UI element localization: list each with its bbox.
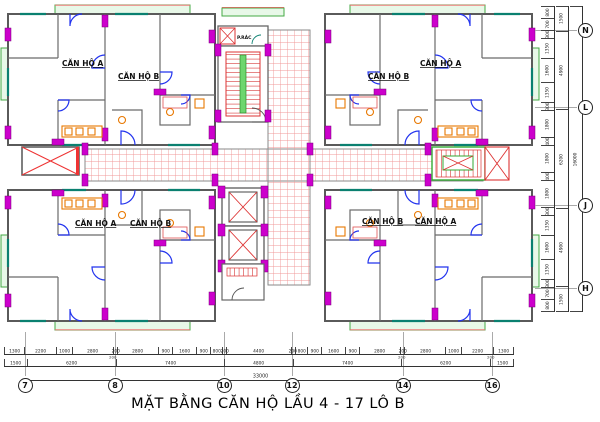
dim-value: 1350 [541, 38, 554, 58]
overall-height-dim: 16000 [573, 152, 578, 166]
dim-value: 4800 [224, 359, 294, 366]
dim-value: 1500 [556, 286, 568, 312]
grid-bubble-l: L [578, 100, 593, 115]
dim-value: 200 [113, 347, 117, 354]
dim-value: 400 [541, 172, 554, 180]
unit-label: CĂN HỘ A [415, 217, 456, 226]
dim-value: 1500 [490, 359, 514, 366]
dim-value: 6200 [401, 359, 491, 366]
dim-value: 300 [541, 30, 554, 38]
stair-shaft-x [485, 147, 509, 180]
dim-value: 400 [541, 137, 554, 145]
bottom-dim-row-total: 33000 [4, 367, 514, 380]
unit-label: CĂN HỘ A [75, 219, 116, 228]
dim-value: 200 [222, 347, 226, 354]
apartment-quadrant-bottom-right [325, 190, 539, 330]
grid-bubble-10: 10 [217, 378, 232, 393]
dim-value: 1350 [541, 82, 554, 102]
dim-value: 4900 [556, 31, 568, 109]
right-dim-col-bays: 15004900620049001500 [556, 6, 569, 312]
dim-value: 700 [541, 287, 554, 298]
grid-bubble-7: 7 [18, 378, 33, 393]
grid-bubble-14: 14 [396, 378, 411, 393]
center-balcony [222, 8, 284, 16]
wall-dim-label: 200 [487, 356, 494, 360]
dim-value: 900 [158, 347, 172, 354]
trash-room: P.RÁC [218, 26, 268, 46]
dim-value: 800 [541, 6, 554, 18]
dim-value: 1300 [493, 347, 514, 354]
emergency-stair [432, 147, 485, 180]
bottom-dim-row-bays: 1500620074004800740062001500 [4, 355, 514, 367]
unit-label: CĂN HỘ B [118, 72, 159, 81]
dim-value: 800 [541, 299, 554, 312]
unit-label: CĂN HỘ B [368, 72, 409, 81]
floor-plan: P.RÁC [0, 0, 540, 335]
dim-value: 200 [291, 347, 295, 354]
grid-bubble-12: 12 [285, 378, 300, 393]
dim-value: 6200 [27, 359, 117, 366]
dim-value: 2800 [117, 347, 158, 354]
trash-room-label: P.RÁC [237, 34, 252, 41]
dim-value: 1300 [4, 347, 24, 354]
dim-value: 1600 [541, 235, 554, 259]
dim-value: 900 [307, 347, 321, 354]
dim-value: 1600 [321, 347, 345, 354]
dim-value: 700 [541, 18, 554, 29]
dim-value: 1800 [541, 180, 554, 207]
dim-value: 7400 [116, 359, 223, 366]
dim-value: 1000 [445, 347, 460, 354]
right-dim-col-total: 16000 [570, 6, 583, 312]
dim-value: 200 [400, 347, 404, 354]
grid-bubble-n: N [578, 23, 593, 38]
apartment-quadrant-top-right [325, 5, 539, 145]
drawing-title: MẶT BẰNG CĂN HỘ LẦU 4 - 17 LÔ B [100, 396, 436, 412]
dim-value: 300 [541, 279, 554, 287]
void-x-room [22, 147, 79, 175]
dim-value: 2800 [404, 347, 445, 354]
unit-label: CĂN HỘ B [362, 217, 403, 226]
grid-bubble-8: 8 [108, 378, 123, 393]
unit-label: CĂN HỘ A [62, 59, 103, 68]
overall-width-dim: 33000 [253, 374, 268, 380]
dim-value: 1000 [56, 347, 71, 354]
dim-value: 900 [345, 347, 359, 354]
dim-value: 2800 [72, 347, 113, 354]
elevator-shafts [218, 186, 268, 300]
dim-value: 2200 [24, 347, 57, 354]
dim-value: 300 [541, 102, 554, 110]
dim-value: 1800 [541, 145, 554, 172]
dim-value: 2800 [359, 347, 400, 354]
dim-value: 1500 [556, 6, 568, 31]
dim-value: 1600 [172, 347, 196, 354]
wall-dim-label: 200 [398, 356, 405, 360]
dim-value: 6200 [556, 109, 568, 208]
dim-value: 7400 [293, 359, 400, 366]
grid-bubble-j: J [578, 198, 593, 213]
apartment-quadrant-bottom-left [1, 190, 215, 330]
drawing-canvas: P.RÁC [0, 0, 600, 422]
grid-bubble-h: H [578, 281, 593, 296]
dim-value: 900 [196, 347, 210, 354]
stairwell [215, 44, 271, 122]
unit-label: CĂN HỘ B [130, 219, 171, 228]
wall-dim-label: 200 [109, 356, 116, 360]
dim-value: 1350 [541, 215, 554, 235]
dim-value: 1500 [4, 359, 27, 366]
right-dim-col-detail: 8007003001350160013503001800400180040018… [541, 6, 555, 312]
dim-value: 2200 [461, 347, 494, 354]
dim-value: 1600 [541, 58, 554, 82]
grid-bubble-16: 16 [485, 378, 500, 393]
dim-value: 300 [541, 207, 554, 215]
dim-value: 4900 [556, 208, 568, 286]
dim-value: 1350 [541, 259, 554, 279]
dim-value: 4400 [226, 347, 290, 354]
bottom-dimension-block: 1300220010002800200280090016009008002004… [4, 343, 514, 380]
bottom-dim-row-detail: 1300220010002800200280090016009008002004… [4, 343, 514, 355]
dim-value: 1800 [541, 110, 554, 137]
unit-label: CĂN HỘ A [420, 59, 461, 68]
apartment-quadrant-top-left [1, 5, 215, 145]
